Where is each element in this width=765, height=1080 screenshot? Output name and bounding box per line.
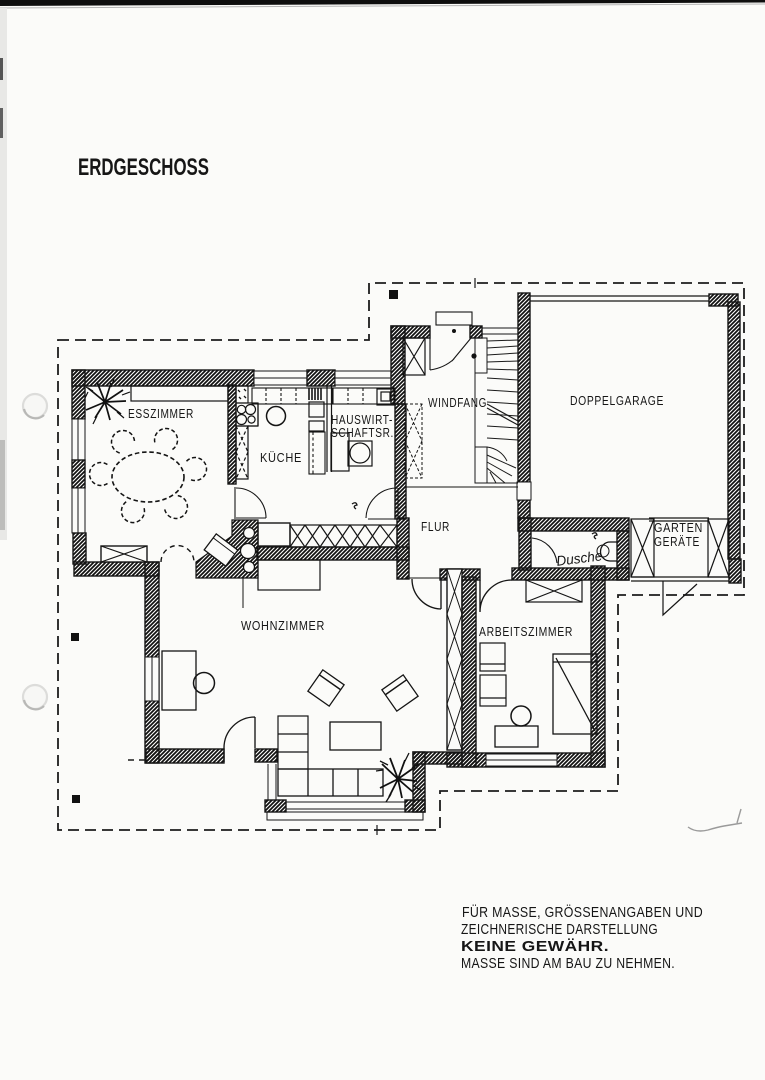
svg-text:GARTEN: GARTEN (654, 520, 703, 535)
svg-text:FLUR: FLUR (421, 519, 450, 534)
svg-text:SCHAFTSR.: SCHAFTSR. (331, 425, 394, 440)
svg-text:ESSZIMMER: ESSZIMMER (128, 406, 194, 421)
svg-text:FÜR MASSE, GRÖSSENANGABEN UND: FÜR MASSE, GRÖSSENANGABEN UND (462, 903, 703, 921)
svg-text:WOHNZIMMER: WOHNZIMMER (241, 618, 325, 633)
svg-text:ARBEITSZIMMER: ARBEITSZIMMER (479, 624, 573, 639)
svg-text:KÜCHE: KÜCHE (260, 450, 302, 465)
svg-text:KEINE GEWÄHR.: KEINE GEWÄHR. (461, 938, 609, 955)
svg-text:ZEICHNERISCHE DARSTELLUNG: ZEICHNERISCHE DARSTELLUNG (461, 921, 658, 938)
svg-text:ERDGESCHOSS: ERDGESCHOSS (78, 154, 209, 181)
svg-text:MASSE SIND AM BAU ZU NEHMEN.: MASSE SIND AM BAU ZU NEHMEN. (461, 955, 675, 972)
svg-text:GERÄTE: GERÄTE (654, 534, 700, 549)
svg-text:DOPPELGARAGE: DOPPELGARAGE (570, 393, 664, 408)
svg-text:WINDFANG: WINDFANG (428, 395, 487, 410)
